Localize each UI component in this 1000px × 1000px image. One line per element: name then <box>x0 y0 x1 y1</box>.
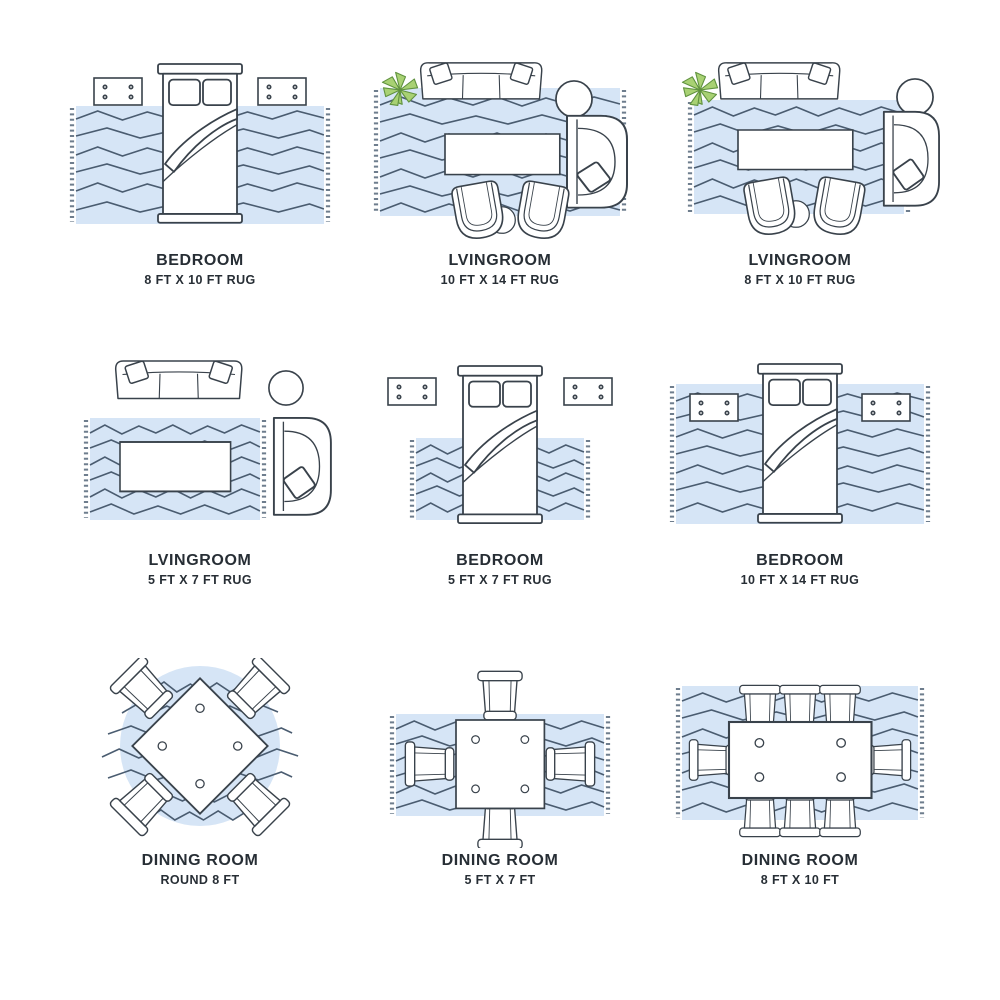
side-table <box>556 81 592 117</box>
room-label: BEDROOM 8 FT X 10 FT RUG <box>144 250 255 288</box>
coffee-table <box>120 442 231 491</box>
livingroom-10x14-illustration <box>360 58 640 248</box>
room-name: DINING ROOM <box>142 850 259 872</box>
room-name: LVINGROOM <box>441 250 560 272</box>
layout-grid: BEDROOM 8 FT X 10 FT RUG <box>0 0 1000 888</box>
nightstand <box>94 78 142 105</box>
room-name: BEDROOM <box>144 250 255 272</box>
rug-layout-card-dining-5x7: DINING ROOM 5 FT X 7 FT <box>350 640 650 888</box>
dining-round-8ft-illustration <box>60 658 340 848</box>
rug-size: 5 FT X 7 FT RUG <box>148 572 252 588</box>
room-name: DINING ROOM <box>742 850 859 872</box>
side-table <box>897 79 933 115</box>
coffee-table <box>445 134 560 175</box>
livingroom-5x7-illustration <box>60 358 340 548</box>
nightstand <box>388 378 436 405</box>
room-name: LVINGROOM <box>148 550 252 572</box>
armchair <box>274 418 331 515</box>
dining-chair <box>546 742 594 786</box>
rug-size: 8 FT X 10 FT RUG <box>144 272 255 288</box>
dining-chair <box>689 740 733 781</box>
room-name: BEDROOM <box>741 550 860 572</box>
nightstand <box>862 394 910 421</box>
coffee-table <box>738 130 853 170</box>
dining-table <box>456 720 544 808</box>
dining-5x7-illustration <box>360 658 640 848</box>
bedroom-10x14-illustration <box>660 358 940 548</box>
sofa <box>719 63 840 99</box>
nightstand <box>564 378 612 405</box>
accent-chair <box>515 180 570 242</box>
rug-layout-card-bedroom-5x7: BEDROOM 5 FT X 7 FT RUG <box>350 340 650 588</box>
dining-chair <box>866 740 910 781</box>
nightstand <box>258 78 306 105</box>
room-label: DINING ROOM ROUND 8 FT <box>142 850 259 888</box>
rug-size: 5 FT X 7 FT <box>442 872 559 888</box>
room-label: BEDROOM 5 FT X 7 FT RUG <box>448 550 552 588</box>
bed <box>458 366 542 523</box>
rug-size: 8 FT X 10 FT RUG <box>744 272 855 288</box>
rug-size: ROUND 8 FT <box>142 872 259 888</box>
rug-layout-card-dining-round-8ft: DINING ROOM ROUND 8 FT <box>50 640 350 888</box>
room-label: BEDROOM 10 FT X 14 FT RUG <box>741 550 860 588</box>
dining-8x10-illustration <box>660 658 940 848</box>
rug-layout-card-dining-8x10: DINING ROOM 8 FT X 10 FT <box>650 640 950 888</box>
side-table <box>269 371 303 405</box>
armchair <box>567 116 627 208</box>
dining-chair <box>405 742 453 786</box>
dining-table <box>729 722 872 798</box>
accent-chair <box>743 176 798 238</box>
rug-layout-card-bedroom-10x14: BEDROOM 10 FT X 14 FT RUG <box>650 340 950 588</box>
bed <box>758 364 842 523</box>
room-label: LVINGROOM 8 FT X 10 FT RUG <box>744 250 855 288</box>
rug-size: 10 FT X 14 FT RUG <box>441 272 560 288</box>
rug-layout-card-livingroom-5x7: LVINGROOM 5 FT X 7 FT RUG <box>50 340 350 588</box>
room-label: DINING ROOM 5 FT X 7 FT <box>442 850 559 888</box>
armchair <box>884 112 939 206</box>
accent-chair <box>811 176 866 238</box>
room-name: BEDROOM <box>448 550 552 572</box>
rug-layout-card-bedroom-8x10: BEDROOM 8 FT X 10 FT RUG <box>50 40 350 288</box>
room-label: LVINGROOM 5 FT X 7 FT RUG <box>148 550 252 588</box>
sofa <box>116 361 242 399</box>
rug-layout-card-livingroom-8x10: LVINGROOM 8 FT X 10 FT RUG <box>650 40 950 288</box>
rug-layout-card-livingroom-10x14: LVINGROOM 10 FT X 14 FT RUG <box>350 40 650 288</box>
room-name: DINING ROOM <box>442 850 559 872</box>
livingroom-8x10-illustration <box>660 58 940 248</box>
rug-size: 8 FT X 10 FT <box>742 872 859 888</box>
room-label: DINING ROOM 8 FT X 10 FT <box>742 850 859 888</box>
bed <box>158 64 242 223</box>
rug-size: 5 FT X 7 FT RUG <box>448 572 552 588</box>
room-label: LVINGROOM 10 FT X 14 FT RUG <box>441 250 560 288</box>
rug-size: 10 FT X 14 FT RUG <box>741 572 860 588</box>
dining-chair <box>478 672 522 720</box>
bedroom-5x7-illustration <box>360 358 640 548</box>
rug-size-guide: BEDROOM 8 FT X 10 FT RUG <box>0 0 1000 1000</box>
room-name: LVINGROOM <box>744 250 855 272</box>
bedroom-8x10-illustration <box>60 58 340 248</box>
sofa <box>421 63 542 99</box>
nightstand <box>690 394 738 421</box>
